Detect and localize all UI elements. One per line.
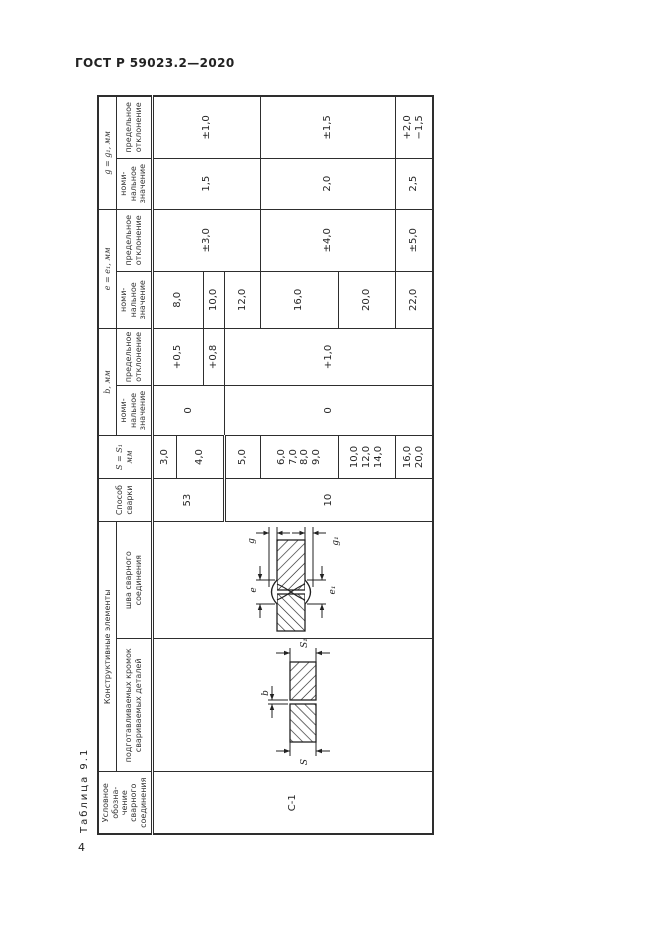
col-header-e-group: e = e₁, мм [98, 209, 116, 328]
cell-designation: С-1 [152, 772, 433, 834]
cell-b-dev-10: +1,0 [225, 328, 434, 385]
cell-b-dev-05: +0,5 [152, 328, 204, 385]
page-number: 4 [78, 841, 85, 854]
cell-e-nom-10: 10,0 [204, 271, 225, 328]
cell-s-4: 4,0 [176, 436, 225, 479]
col-header-e-nominal: номи- нальное значение [116, 271, 152, 328]
e1-label: e₁ [328, 586, 338, 595]
cell-s-5: 5,0 [225, 436, 261, 479]
left-plate [290, 704, 316, 742]
rotated-table-area: Таблица 9.1 Условное обозна- чение сварн… [78, 95, 396, 835]
cell-g-nom-15: 1,5 [152, 158, 261, 209]
cell-e-nom-8: 8,0 [152, 271, 204, 328]
col-header-edges: подготавливаемых кромок свариваемых дета… [116, 639, 152, 772]
cell-e-dev-3: ±3,0 [152, 209, 261, 271]
col-header-g-group: g = g₁, мм [98, 96, 116, 209]
col-header-construct-group: Конструктивные элементы [98, 522, 116, 772]
col-header-b-group: b, мм [98, 328, 116, 435]
header-row-1: Условное обозна- чение сварного соединен… [98, 96, 116, 834]
col-header-designation: Условное обозна- чение сварного соединен… [98, 772, 152, 834]
s1-label: S₁ [300, 639, 310, 648]
col-header-e-deviation: предельное отклонение [116, 209, 152, 271]
cell-e-nom-16: 16,0 [261, 271, 339, 328]
cell-e-dev-5: ±5,0 [395, 209, 433, 271]
g-label: g [247, 538, 257, 544]
cell-e-dev-4: ±4,0 [261, 209, 396, 271]
cell-g-dev-15: ±1,5 [261, 96, 396, 158]
col-header-b-nominal: номи- нальное значение [116, 385, 152, 435]
col-header-weld: шва сварного соединения [116, 522, 152, 639]
cell-e-nom-22: 22,0 [395, 271, 433, 328]
col-header-g-nominal: номи- нальное значение [116, 158, 152, 209]
cell-g-dev-20-15: +2,0 −1,5 [395, 96, 433, 158]
col-header-s: S = S₁ мм [98, 436, 152, 479]
b-dimension [268, 686, 288, 718]
welded-joint-drawing: e e₁ [172, 522, 413, 637]
cell-s-10-14: 10,0 12,0 14,0 [338, 436, 395, 479]
g1-label: g₁ [331, 537, 341, 546]
prepared-edges-drawing: b S [172, 639, 413, 770]
cell-s-16-20: 16,0 20,0 [395, 436, 433, 479]
right-plate [290, 662, 316, 700]
cell-g-nom-20: 2,0 [261, 158, 396, 209]
cell-b-dev-08: +0,8 [204, 328, 225, 385]
diagram-welded-joint: e e₁ [152, 522, 433, 639]
cell-b-nom-1: 0 [152, 385, 225, 435]
e-label: e [249, 588, 259, 593]
cell-e-nom-12: 12,0 [225, 271, 261, 328]
col-header-b-deviation: предельное отклонение [116, 328, 152, 385]
b-label: b [261, 690, 271, 696]
diagram-prepared-edges: b S [152, 639, 433, 772]
cell-b-nom-2: 0 [225, 385, 434, 435]
welded-joint-table: Условное обозна- чение сварного соединен… [97, 95, 434, 835]
cell-s-6-9: 6,0 7,0 8,0 9,0 [261, 436, 339, 479]
left-plate [277, 594, 305, 631]
document-header: ГОСТ Р 59023.2—2020 [75, 56, 235, 70]
col-header-g-deviation: предельное отклонение [116, 96, 152, 158]
cell-g-dev-10: ±1,0 [152, 96, 261, 158]
cell-g-nom-25: 2,5 [395, 158, 433, 209]
cell-s-3: 3,0 [152, 436, 176, 479]
cell-method-10: 10 [225, 479, 434, 522]
table-row: С-1 [152, 96, 176, 834]
cell-e-nom-20: 20,0 [338, 271, 395, 328]
rotated-table-inner: Таблица 9.1 Условное обозна- чение сварн… [78, 95, 396, 835]
table-caption: Таблица 9.1 [78, 95, 97, 835]
scanned-standard-page: { "page": { "doc_header": "ГОСТ Р 59023.… [0, 0, 661, 935]
col-header-method: Способ сварки [98, 479, 152, 522]
cell-method-53: 53 [152, 479, 225, 522]
right-plate [277, 540, 305, 590]
s-label: S [300, 759, 310, 765]
